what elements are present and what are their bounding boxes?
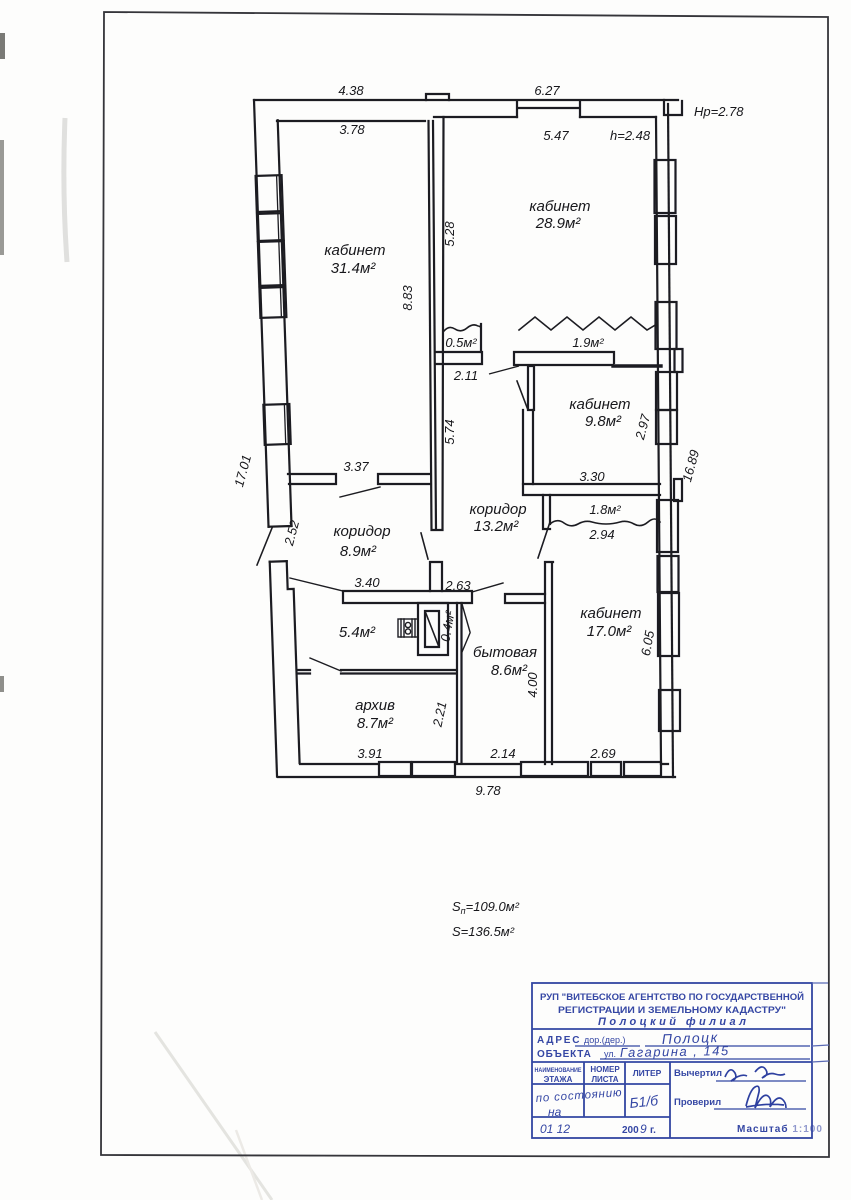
svg-text:13.2м²: 13.2м² (474, 518, 519, 535)
svg-text:8.7м²: 8.7м² (357, 715, 394, 732)
svg-text:8.83: 8.83 (400, 285, 415, 311)
svg-text:по состоянию: по состоянию (535, 1087, 622, 1105)
svg-text:бытовая: бытовая (473, 644, 537, 661)
svg-text:НАИМЕНОВАНИЕ: НАИМЕНОВАНИЕ (535, 1067, 583, 1074)
svg-text:16.89: 16.89 (679, 448, 702, 483)
svg-text:9.78: 9.78 (475, 783, 501, 798)
svg-text:9.8м²: 9.8м² (585, 413, 622, 430)
svg-text:архив: архив (355, 697, 395, 714)
svg-text:5.4м²: 5.4м² (339, 624, 376, 641)
svg-text:8.6м²: 8.6м² (491, 662, 528, 679)
svg-text:Б1/б: Б1/б (629, 1092, 660, 1111)
svg-text:кабинет: кабинет (580, 605, 641, 622)
svg-text:ЭТАЖА: ЭТАЖА (544, 1075, 573, 1084)
svg-text:4.38: 4.38 (338, 83, 364, 98)
svg-text:2.21: 2.21 (429, 700, 449, 729)
svg-text:Масштаб 1:100: Масштаб 1:100 (737, 1123, 823, 1135)
svg-text:5.47: 5.47 (543, 128, 569, 143)
svg-text:ЛИСТА: ЛИСТА (591, 1075, 618, 1084)
svg-text:1.8м²: 1.8м² (589, 502, 621, 517)
svg-text:Полоцкий филиал: Полоцкий филиал (598, 1016, 746, 1028)
svg-text:Нр=2.78: Нр=2.78 (694, 104, 744, 119)
svg-text:Гагарина , 145: Гагарина , 145 (620, 1043, 730, 1060)
svg-text:3.91: 3.91 (357, 746, 382, 761)
svg-text:3.78: 3.78 (339, 122, 365, 137)
svg-text:НОМЕР: НОМЕР (590, 1065, 620, 1074)
svg-text:на: на (548, 1105, 562, 1119)
svg-text:2.52: 2.52 (281, 518, 302, 548)
svg-text:г.: г. (650, 1125, 656, 1136)
svg-text:0.4м²: 0.4м² (437, 609, 457, 643)
svg-text:4.00: 4.00 (525, 672, 540, 698)
svg-text:РУП "ВИТЕБСКОЕ АГЕНТСТВО ПО ГО: РУП "ВИТЕБСКОЕ АГЕНТСТВО ПО ГОСУДАРСТВЕН… (540, 991, 804, 1002)
svg-text:3.30: 3.30 (579, 469, 605, 484)
svg-text:17.0м²: 17.0м² (587, 623, 632, 640)
svg-text:8.9м²: 8.9м² (340, 543, 377, 560)
svg-text:2.11: 2.11 (453, 368, 478, 383)
svg-text:2.94: 2.94 (588, 527, 614, 542)
svg-text:2.69: 2.69 (589, 746, 615, 761)
svg-text:01 12: 01 12 (540, 1122, 570, 1136)
svg-text:ЛИТЕР: ЛИТЕР (633, 1068, 662, 1078)
svg-text:5.74: 5.74 (442, 419, 457, 444)
svg-text:РЕГИСТРАЦИИ И ЗЕМЕЛЬНОМУ КАДАС: РЕГИСТРАЦИИ И ЗЕМЕЛЬНОМУ КАДАСТРУ" (558, 1005, 786, 1015)
svg-text:ул.: ул. (604, 1049, 616, 1059)
svg-text:кабинет: кабинет (529, 198, 590, 215)
svg-text:кабинет: кабинет (569, 396, 630, 413)
svg-text:31.4м²: 31.4м² (331, 260, 376, 277)
svg-text:2.97: 2.97 (632, 412, 653, 442)
svg-text:0.5м²: 0.5м² (445, 335, 477, 350)
svg-text:Sп=109.0м²: Sп=109.0м² (452, 899, 520, 916)
svg-text:дор.(дер.): дор.(дер.) (584, 1035, 626, 1045)
svg-text:1.9м²: 1.9м² (572, 335, 604, 350)
svg-text:28.9м²: 28.9м² (535, 215, 581, 232)
svg-text:S=136.5м²: S=136.5м² (452, 924, 515, 939)
svg-text:коридор: коридор (469, 501, 526, 518)
svg-text:17.01: 17.01 (231, 453, 254, 488)
svg-text:коридор: коридор (333, 523, 390, 540)
svg-text:9: 9 (640, 1122, 647, 1136)
svg-text:5.28: 5.28 (442, 221, 457, 247)
svg-text:2.14: 2.14 (489, 746, 515, 761)
svg-text:6.27: 6.27 (534, 83, 560, 98)
svg-text:АДРЕС: АДРЕС (537, 1035, 581, 1046)
svg-text:h=2.48: h=2.48 (610, 128, 651, 143)
svg-text:6.05: 6.05 (638, 629, 657, 657)
svg-text:Проверил: Проверил (674, 1097, 721, 1108)
svg-text:3.37: 3.37 (343, 459, 369, 474)
svg-text:кабинет: кабинет (324, 242, 385, 259)
svg-text:200: 200 (622, 1125, 639, 1136)
svg-text:ОБЪЕКТА: ОБЪЕКТА (537, 1049, 592, 1060)
svg-text:3.40: 3.40 (354, 575, 380, 590)
svg-text:Вычертил: Вычертил (674, 1068, 722, 1079)
svg-text:2.63: 2.63 (444, 578, 471, 593)
